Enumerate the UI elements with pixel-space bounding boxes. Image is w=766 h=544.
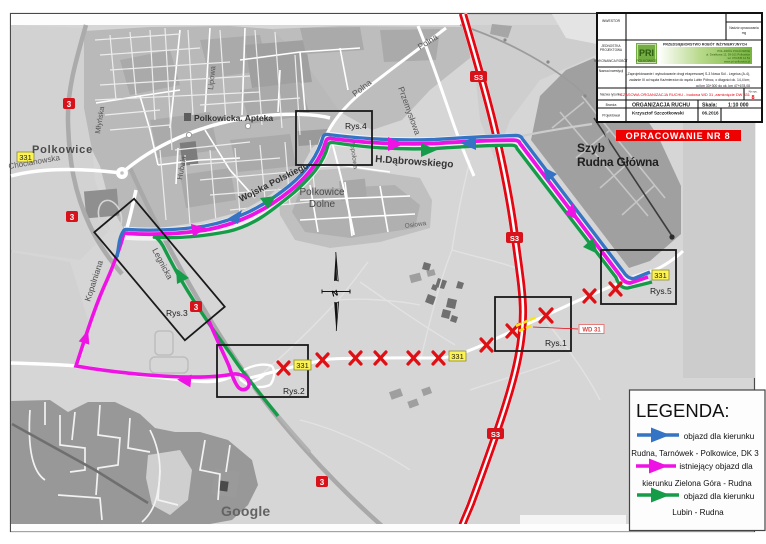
svg-text:INWESTOR: INWESTOR xyxy=(602,19,621,23)
svg-text:3: 3 xyxy=(70,213,75,222)
svg-text:3: 3 xyxy=(320,478,325,487)
svg-text:Polkowice: Polkowice xyxy=(32,144,93,156)
svg-text:Projektował: Projektował xyxy=(602,114,620,118)
svg-text:S3: S3 xyxy=(474,73,483,82)
svg-text:PRZEDSIĘBIORSTWO ROBÓT INŻYNIE: PRZEDSIĘBIORSTWO ROBÓT INŻYNIERYJNYCH xyxy=(663,42,747,47)
svg-text:ORGANIZACJA RUCHU: ORGANIZACJA RUCHU xyxy=(632,102,690,108)
svg-text:Krzysztof Szczotkowski: Krzysztof Szczotkowski xyxy=(632,111,684,116)
svg-text:PROJEKTOWA: PROJEKTOWA xyxy=(600,48,623,52)
svg-text:OPRACOWANIE NR 8: OPRACOWANIE NR 8 xyxy=(626,131,731,141)
svg-text:kierunku Zielona Góra - Rudna: kierunku Zielona Góra - Rudna xyxy=(642,479,752,488)
svg-text:Lubin - Rudna: Lubin - Rudna xyxy=(672,508,724,517)
svg-text:Rys.4: Rys.4 xyxy=(345,121,367,131)
svg-text:„Zaprojektowanie i wybudowanie: „Zaprojektowanie i wybudowanie drogi eks… xyxy=(627,72,750,76)
svg-text:Polkowicka. Apteka: Polkowicka. Apteka xyxy=(194,113,273,123)
svg-text:CZASOWA ORGANIZACJA RUCHU - bu: CZASOWA ORGANIZACJA RUCHU - budowa WD 31… xyxy=(620,92,750,97)
svg-text:Polkowice: Polkowice xyxy=(299,187,344,198)
svg-text:objazd dla kierunku: objazd dla kierunku xyxy=(684,432,755,441)
svg-text:WD 31: WD 31 xyxy=(582,328,601,334)
svg-text:331: 331 xyxy=(451,352,464,361)
svg-text:mg: mg xyxy=(742,31,747,35)
svg-text:8: 8 xyxy=(751,95,754,101)
svg-text:Nadzór opracowania: Nadzór opracowania xyxy=(729,26,758,30)
svg-text:PRI: PRI xyxy=(639,48,654,58)
svg-text:Szyb: Szyb xyxy=(577,141,605,155)
svg-text:od km 33+300 do ok. km 47+678,: od km 33+300 do ok. km 47+678,08 xyxy=(696,84,750,88)
svg-text:LEGENDA:: LEGENDA: xyxy=(636,400,730,421)
svg-text:objazd dla kierunku: objazd dla kierunku xyxy=(684,492,755,501)
svg-text:1:10 000: 1:10 000 xyxy=(728,102,749,108)
svg-text:Rys.2: Rys.2 xyxy=(283,386,305,396)
svg-text:Rys.5: Rys.5 xyxy=(650,286,672,296)
svg-text:S3: S3 xyxy=(510,234,519,243)
svg-text:POLKOWICE: POLKOWICE xyxy=(636,59,657,63)
svg-text:Nr rys.: Nr rys. xyxy=(749,90,758,94)
svg-text:3: 3 xyxy=(67,100,72,109)
svg-text:Rudna, Tarnówek - Polkowice, D: Rudna, Tarnówek - Polkowice, DK 3 xyxy=(631,449,759,458)
svg-text:istniejący objazd dla: istniejący objazd dla xyxy=(679,462,753,471)
svg-text:zadanie III od węzła Kaźmierzó: zadanie III od węzła Kaźmierzów do węzła… xyxy=(629,78,750,82)
svg-text:Nazwa rysunku: Nazwa rysunku xyxy=(600,93,622,97)
svg-text:331: 331 xyxy=(654,271,667,280)
svg-text:Branża: Branża xyxy=(606,103,617,107)
svg-text:06.2016: 06.2016 xyxy=(702,111,719,116)
svg-text:Skala:: Skala: xyxy=(702,102,718,108)
svg-text:WYKONAWCA ROBÓT: WYKONAWCA ROBÓT xyxy=(594,58,628,63)
svg-text:Rudna Główna: Rudna Główna xyxy=(577,155,659,169)
svg-text:www.pri-polkowice.pl: www.pri-polkowice.pl xyxy=(724,60,750,64)
svg-text:Google: Google xyxy=(221,503,270,519)
svg-text:S3: S3 xyxy=(491,430,500,439)
svg-text:Dolne: Dolne xyxy=(309,199,336,210)
svg-text:Rys.3: Rys.3 xyxy=(166,308,188,318)
svg-text:331: 331 xyxy=(296,361,309,370)
svg-text:Rys.1: Rys.1 xyxy=(545,338,567,348)
svg-text:3: 3 xyxy=(194,303,199,312)
svg-text:Nazwa inwestycji: Nazwa inwestycji xyxy=(599,69,624,73)
